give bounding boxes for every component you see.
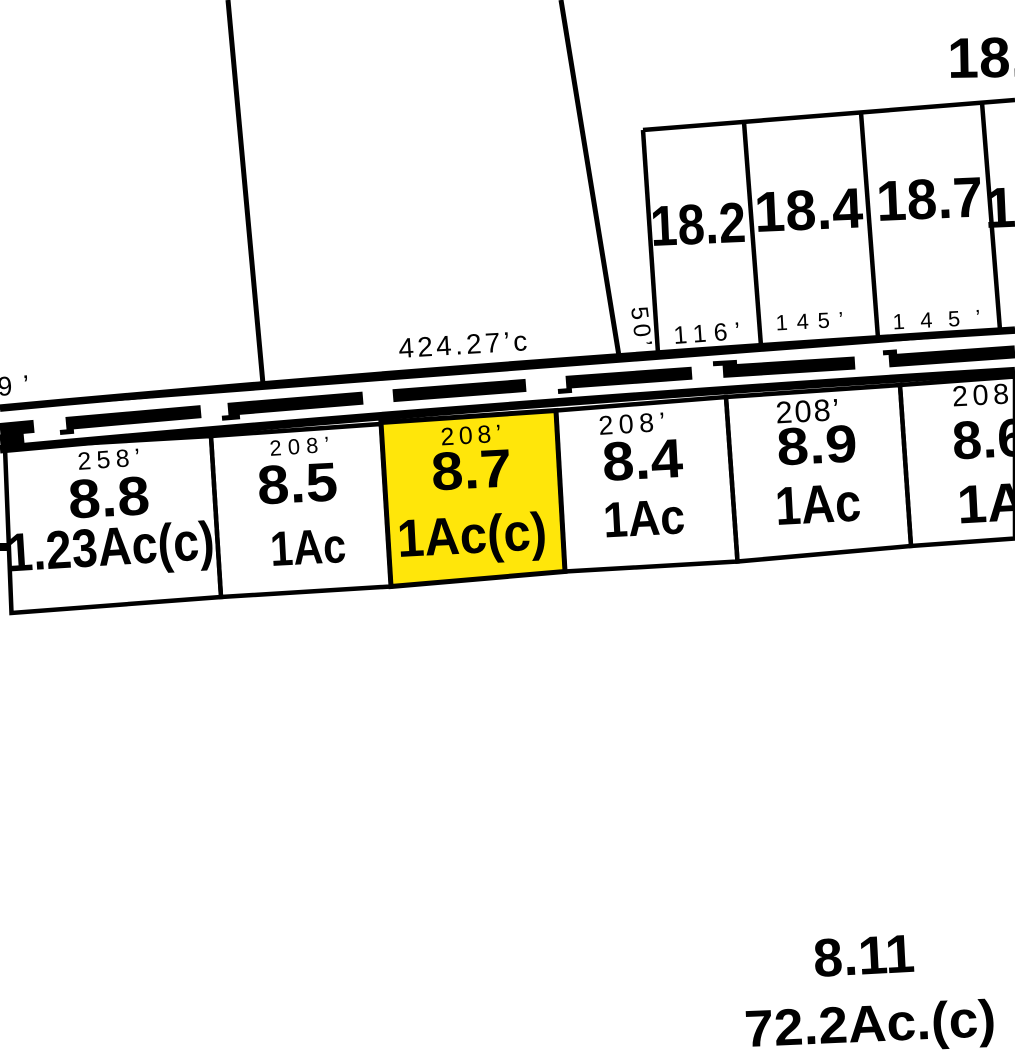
- svg-text:8.7: 8.7: [429, 438, 513, 502]
- svg-text:1: 1: [983, 176, 1015, 241]
- svg-text:18.4: 18.4: [753, 176, 865, 245]
- svg-text:1Ac: 1Ac: [773, 473, 862, 537]
- svg-text:1.23Ac(c): 1.23Ac(c): [5, 511, 216, 584]
- svg-text:8.4: 8.4: [600, 427, 685, 493]
- svg-text:18.7: 18.7: [875, 165, 985, 234]
- svg-text:8.5: 8.5: [255, 450, 339, 516]
- svg-text:18.1: 18.1: [947, 25, 1015, 91]
- svg-text:1Ac: 1Ac: [602, 488, 687, 548]
- svg-text:8.11: 8.11: [811, 924, 916, 989]
- svg-text:72.2Ac.(c): 72.2Ac.(c): [743, 990, 997, 1051]
- svg-text:1Ac: 1Ac: [269, 519, 348, 577]
- svg-text:18.2: 18.2: [649, 191, 748, 259]
- svg-text:8.9: 8.9: [775, 414, 859, 477]
- svg-text:1Ac(c): 1Ac(c): [396, 502, 549, 569]
- svg-text:8.6: 8.6: [950, 408, 1015, 472]
- svg-text:1Ac: 1Ac: [955, 470, 1015, 535]
